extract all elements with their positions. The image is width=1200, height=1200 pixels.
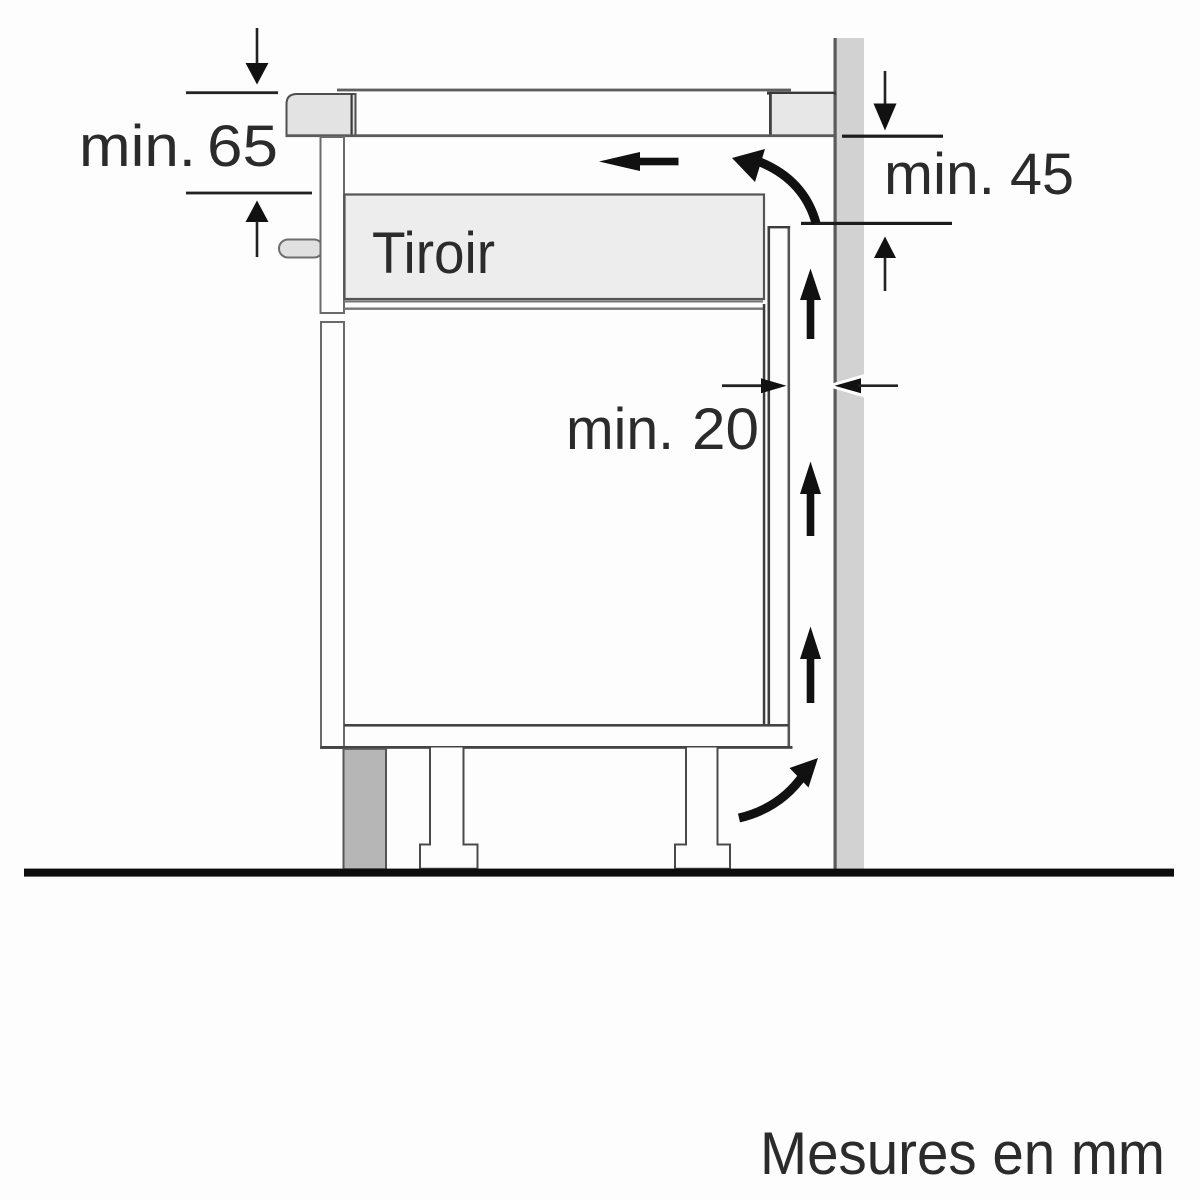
svg-text:45: 45 — [1010, 142, 1074, 207]
svg-text:Tiroir: Tiroir — [372, 221, 495, 286]
svg-text:Mesures en mm: Mesures en mm — [760, 1120, 1165, 1187]
svg-text:min.: min. — [79, 114, 196, 179]
svg-text:min.: min. — [566, 397, 674, 462]
svg-text:min.: min. — [884, 142, 995, 207]
svg-text:65: 65 — [207, 114, 278, 179]
svg-text:20: 20 — [692, 397, 759, 462]
